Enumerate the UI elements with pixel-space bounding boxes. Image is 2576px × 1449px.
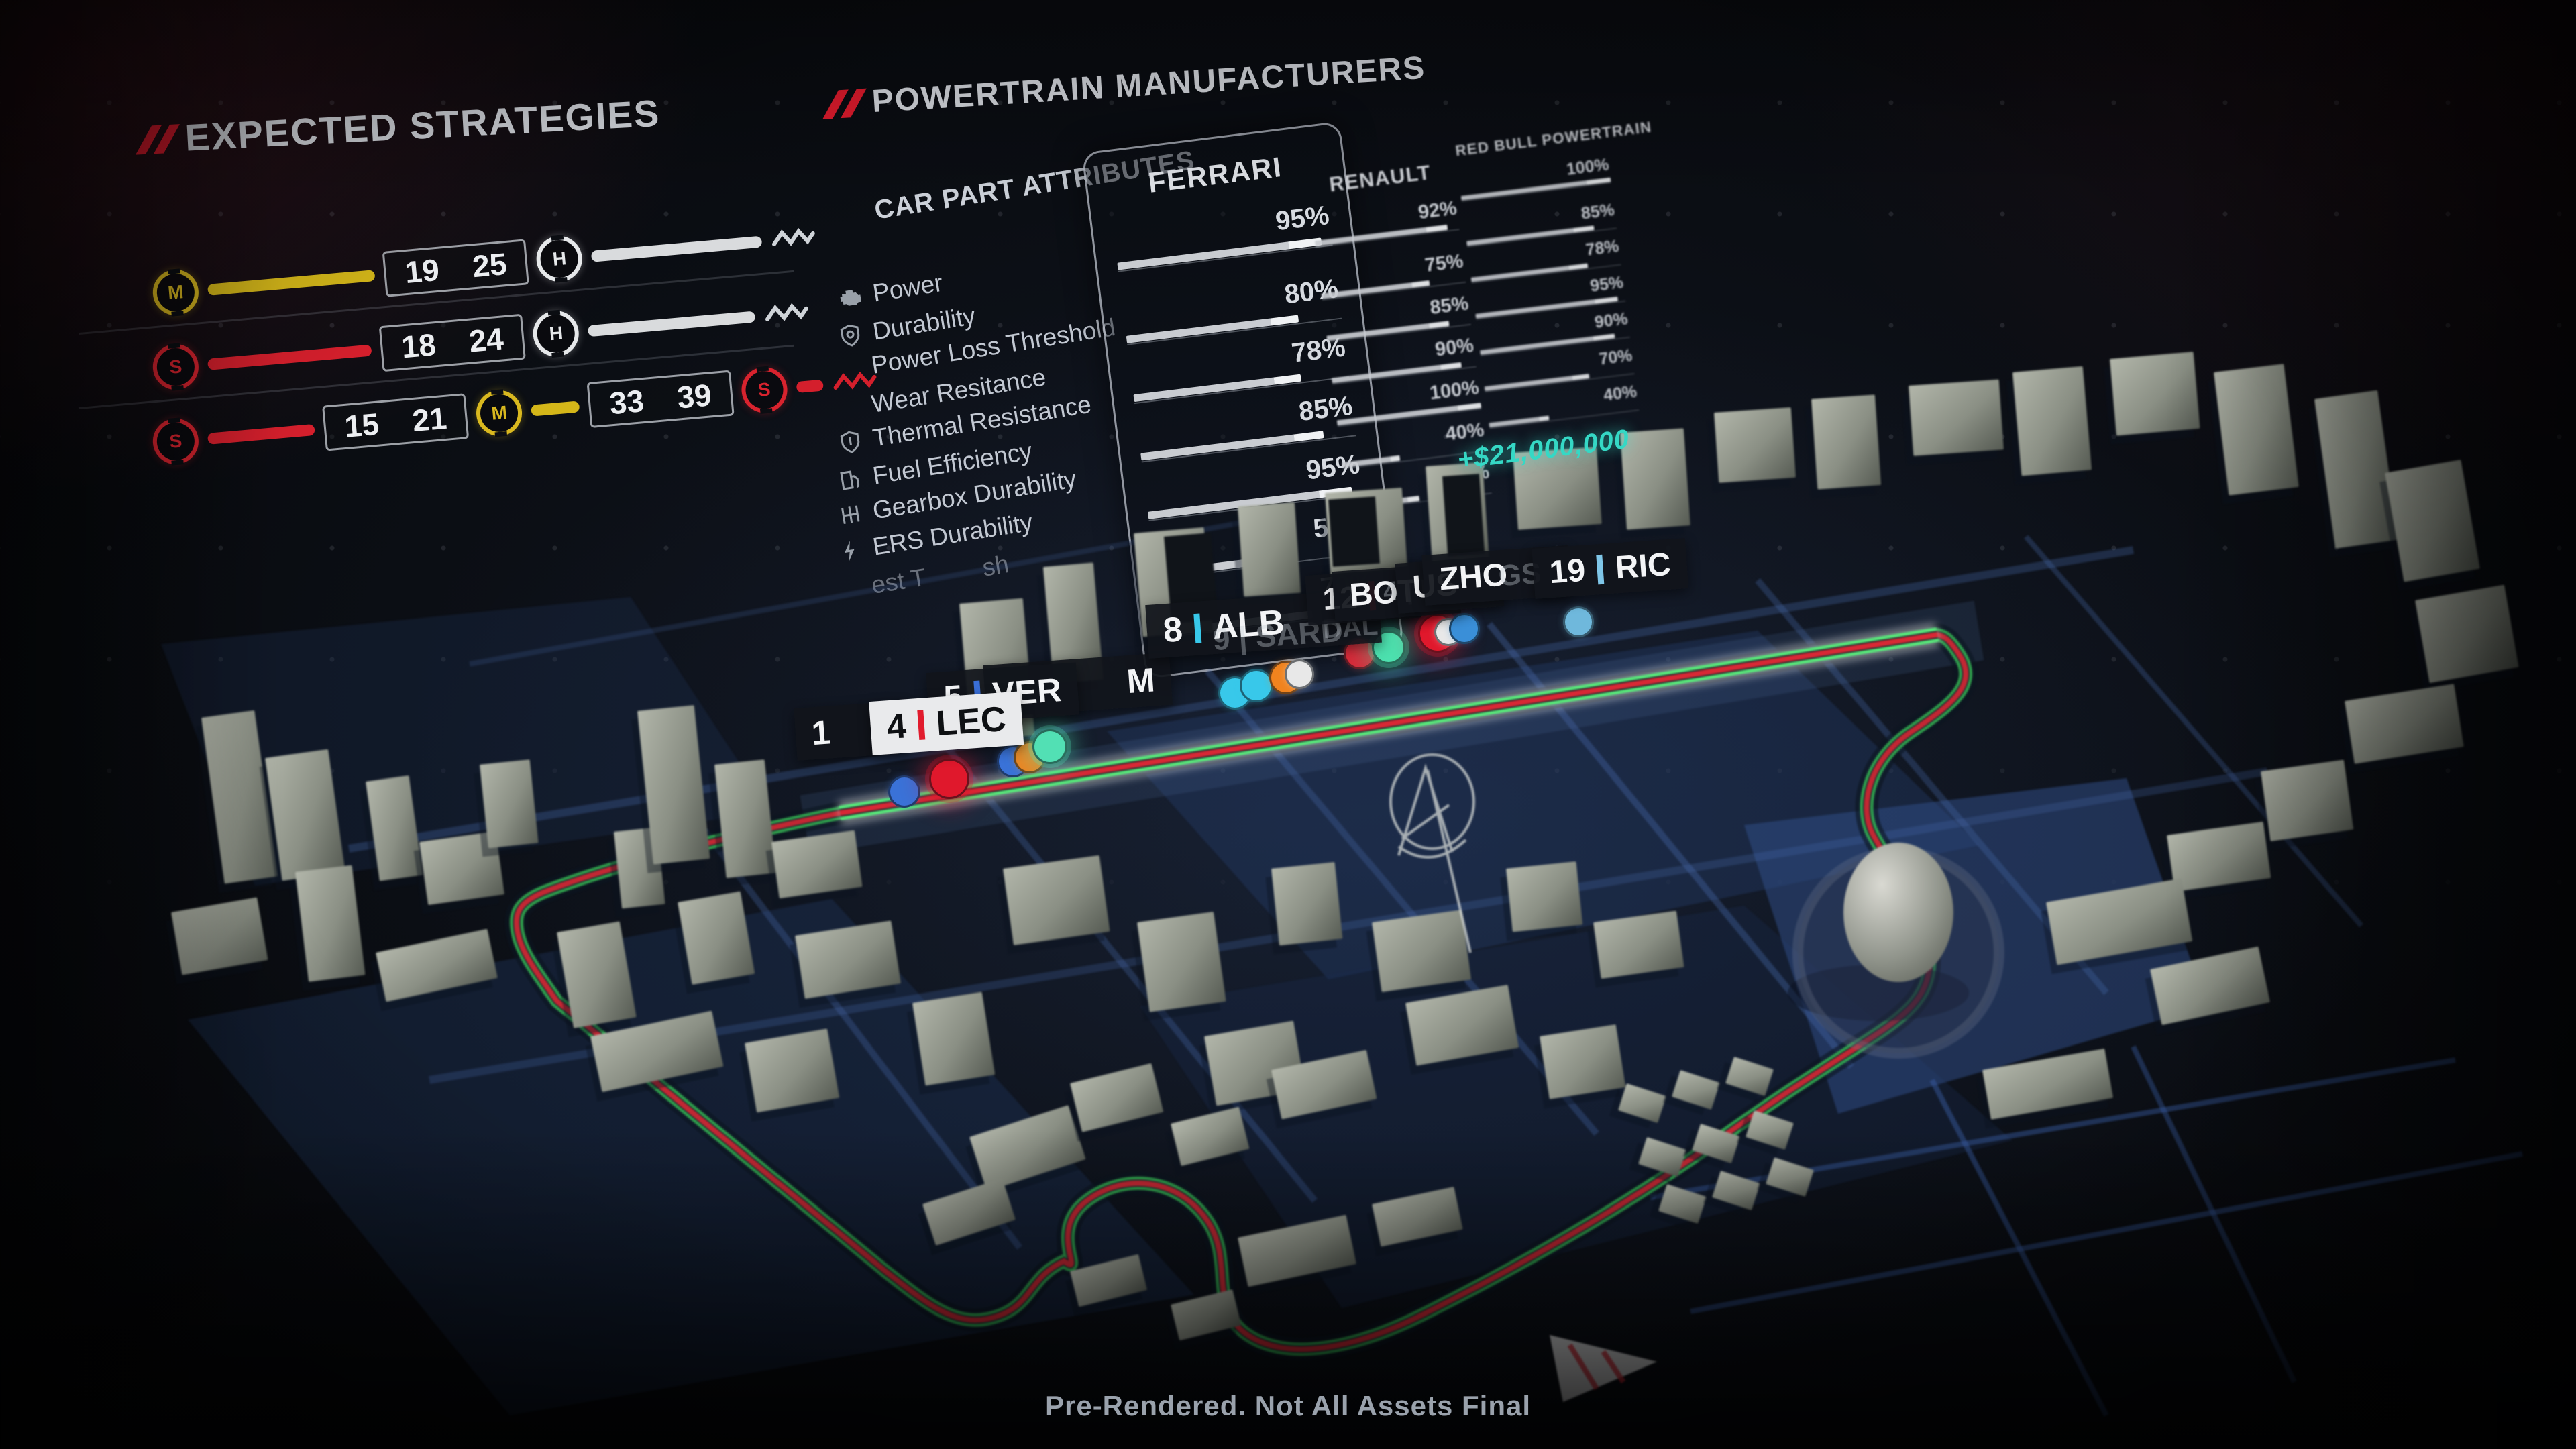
driver-number: 19 bbox=[1548, 552, 1587, 592]
team-color-separator bbox=[1597, 554, 1605, 584]
driver-car-dot[interactable] bbox=[1285, 659, 1314, 689]
driver-car-dot[interactable] bbox=[1449, 613, 1480, 644]
driver-label-ric[interactable]: 19RIC bbox=[1532, 538, 1688, 599]
driver-label-lec[interactable]: 4LEC bbox=[869, 691, 1024, 755]
driver-number: 8 bbox=[1162, 609, 1184, 651]
f1-manager-race-map-screen: EXPECTED STRATEGIES M1925HS1824HS1521M33… bbox=[0, 0, 2576, 1449]
driver-code: RIC bbox=[1614, 546, 1672, 587]
driver-number: 1 bbox=[810, 712, 832, 753]
team-color-separator bbox=[917, 710, 925, 740]
circuit-city-map bbox=[0, 0, 2576, 1449]
runoff-area bbox=[1550, 1335, 1657, 1402]
driver-car-dot[interactable] bbox=[929, 759, 969, 799]
driver-car-dot[interactable] bbox=[1563, 606, 1594, 637]
driver-car-dot[interactable] bbox=[1032, 729, 1067, 764]
driver-code: M bbox=[1126, 660, 1157, 701]
driver-car-dot[interactable] bbox=[888, 775, 920, 808]
driver-code: LEC bbox=[935, 699, 1008, 744]
driver-number: 4 bbox=[885, 706, 908, 747]
pre-render-watermark: Pre-Rendered. Not All Assets Final bbox=[1045, 1390, 1531, 1422]
driver-car-dot[interactable] bbox=[1240, 669, 1273, 702]
